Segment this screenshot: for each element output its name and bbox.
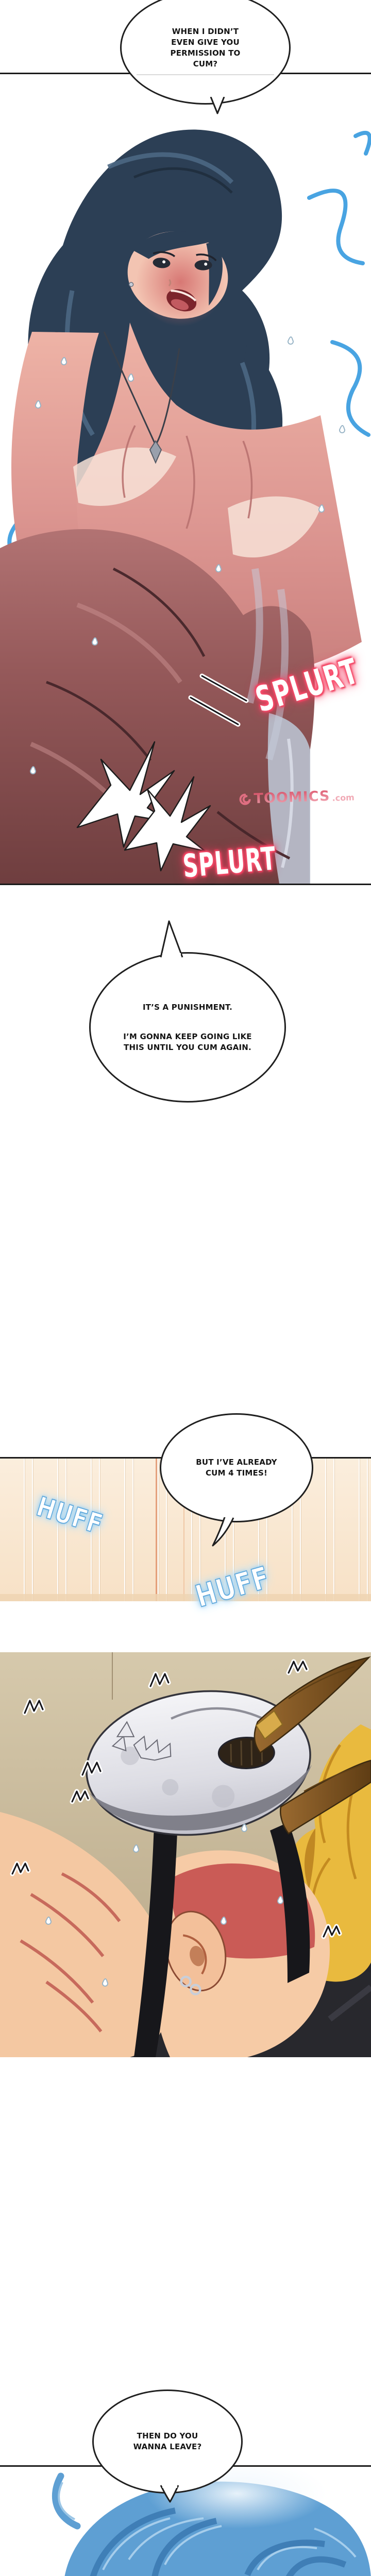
bubble2-text-1: IT’S A PUNISHMENT.	[143, 1002, 232, 1013]
panel-border-through-bubble	[137, 74, 274, 75]
man-artwork	[0, 1652, 371, 2057]
panel-man	[0, 1652, 371, 2057]
wall-accent-line-1	[156, 1459, 157, 1601]
webtoon-page: SPLURT SPLURT HUFF HUFF TOOMICS .com WHE…	[0, 0, 371, 2576]
watermark-brand: TOOMICS	[254, 788, 330, 807]
stray-strand	[55, 2476, 77, 2526]
bubble4-tail	[158, 2484, 180, 2505]
bubble2-tail	[156, 918, 187, 959]
earring	[129, 282, 134, 287]
bubble3-tail	[209, 1513, 239, 1550]
speech-bubble-4: THEN DO YOU WANNA LEAVE?	[92, 2389, 243, 2494]
woman-artwork	[0, 74, 371, 884]
watermark-suffix: .com	[332, 792, 355, 804]
bubble3-text: BUT I’VE ALREADY CUM 4 TIMES!	[196, 1457, 277, 1479]
bubble2-text-2: I’M GONNA KEEP GOING LIKE THIS UNTIL YOU…	[123, 1031, 252, 1053]
bubble1-text: WHEN I DIDN’T EVEN GIVE YOU PERMISSION T…	[171, 26, 241, 70]
speech-bubble-3: BUT I’VE ALREADY CUM 4 TIMES!	[160, 1413, 313, 1522]
wall-bottom-strip	[0, 1594, 371, 1601]
watermark-logo-icon	[238, 792, 252, 806]
speech-bubble-2: IT’S A PUNISHMENT. I’M GONNA KEEP GOING …	[89, 952, 286, 1103]
bubble4-text: THEN DO YOU WANNA LEAVE?	[133, 2431, 202, 2452]
panel-woman	[0, 73, 371, 885]
bubble1-tail	[209, 97, 227, 114]
